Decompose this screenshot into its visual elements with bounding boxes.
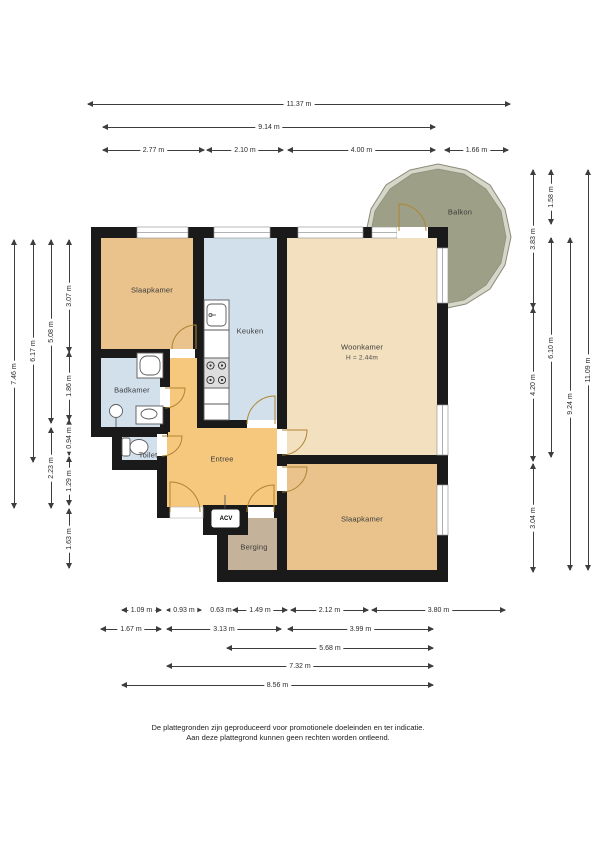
dimension-line: 11.09 m — [588, 170, 589, 570]
dimension-line: 3.80 m — [372, 610, 505, 611]
dimension-line: 5.08 m — [51, 240, 52, 423]
dimension-line: 1.49 m — [233, 610, 287, 611]
room-label-keuken: Keuken — [237, 327, 264, 336]
dimension-line: 1.66 m — [445, 150, 508, 151]
dimension-line: 0.63 m — [209, 610, 233, 611]
room-label-woonkamer: Woonkamer — [341, 343, 383, 352]
bathroom-sink-icon — [136, 406, 163, 424]
dimension-line: 2.77 m — [103, 150, 204, 151]
dimension-label: 11.09 m — [585, 355, 593, 386]
dimension-line: 1.67 m — [101, 629, 161, 630]
dimension-label: 6.17 m — [30, 337, 38, 364]
dimension-line: 2.23 m — [51, 428, 52, 508]
dimension-label: 1.29 m — [66, 467, 74, 494]
room-label-slaapkamer-right: Slaapkamer — [341, 515, 383, 524]
dimension-label: 1.58 m — [548, 183, 556, 210]
dimension-label: 9.14 m — [255, 124, 282, 132]
dimension-label: 1.49 m — [246, 607, 273, 615]
dimension-label: 7.46 m — [11, 360, 19, 387]
dimension-line: 2.12 m — [291, 610, 368, 611]
door-opening-toilet — [157, 434, 167, 456]
dimension-label: 1.67 m — [117, 626, 144, 634]
dimension-label: 2.12 m — [316, 607, 343, 615]
dimension-label: 1.86 m — [66, 372, 74, 399]
dimension-label: 4.20 m — [530, 371, 538, 398]
footer-line-2: Aan deze plattegrond kunnen geen rechten… — [0, 733, 576, 743]
dimension-line: 2.10 m — [207, 150, 283, 151]
dimension-line: 0.93 m — [167, 610, 201, 611]
dimension-label: 11.37 m — [284, 101, 315, 109]
door-opening-badkamer — [160, 387, 170, 407]
dimension-line: 3.07 m — [69, 240, 70, 352]
floorplan-page: Slaapkamer Keuken Woonkamer H = 2.44m Ba… — [0, 0, 600, 849]
dimension-label: 0.93 m — [170, 607, 197, 615]
footer-disclaimer: De plattegronden zijn geproduceerd voor … — [0, 723, 576, 742]
door-opening-woonkamer — [277, 429, 287, 454]
dimension-label: 3.07 m — [66, 282, 74, 309]
room-label-balkon: Balkon — [448, 208, 472, 217]
dimension-line: 3.04 m — [533, 464, 534, 572]
dimension-line: 1.09 m — [122, 610, 161, 611]
dimension-label: 2.10 m — [231, 147, 258, 155]
kitchen-sink-icon — [207, 304, 226, 326]
room-entree-main — [162, 420, 282, 512]
dimension-label: 1.09 m — [128, 607, 155, 615]
dimension-label: 4.00 m — [348, 147, 375, 155]
dimension-line: 1.29 m — [69, 457, 70, 505]
door-opening-slaapkamer-left — [170, 349, 195, 358]
dimension-label: 6.10 m — [548, 334, 556, 361]
footer-line-1: De plattegronden zijn geproduceerd voor … — [0, 723, 576, 733]
dimension-line: 3.83 m — [533, 170, 534, 308]
door-opening-slaapkamer-right — [277, 466, 287, 491]
room-label-entree: Entree — [210, 455, 233, 464]
room-label-slaapkamer-left: Slaapkamer — [131, 286, 173, 295]
dimension-line: 4.00 m — [288, 150, 435, 151]
room-entree-corridor — [165, 354, 199, 424]
room-label-acv: ACV — [220, 516, 233, 522]
dimension-label: 0.63 m — [207, 607, 234, 615]
dimension-label: 8.56 m — [264, 682, 291, 690]
room-label-berging: Berging — [240, 543, 267, 552]
dimension-label: 5.08 m — [48, 318, 56, 345]
dimension-label: 2.77 m — [140, 147, 167, 155]
dimension-line: 1.86 m — [69, 352, 70, 420]
dimension-line: 7.46 m — [14, 240, 15, 508]
room-label-toilet: Toilet — [139, 451, 158, 460]
dimension-label: 5.68 m — [316, 645, 343, 653]
dimension-label: 9.24 m — [567, 390, 575, 417]
door-opening-berging — [248, 507, 274, 518]
dimension-label: 3.04 m — [530, 504, 538, 531]
room-fills — [96, 232, 442, 575]
dimension-line: 6.17 m — [33, 240, 34, 462]
room-note-ceiling-height: H = 2.44m — [346, 355, 378, 362]
dimension-label: 2.23 m — [48, 454, 56, 481]
dimension-line: 5.68 m — [227, 648, 433, 649]
stove-icon — [204, 358, 229, 388]
dimension-label: 3.99 m — [347, 626, 374, 634]
dimension-line: 3.13 m — [167, 629, 281, 630]
dimension-line: 1.63 m — [69, 509, 70, 568]
dimension-line: 3.99 m — [288, 629, 433, 630]
room-label-badkamer: Badkamer — [114, 386, 150, 395]
bathtub-icon — [137, 353, 163, 378]
dimension-label: 7.32 m — [286, 663, 313, 671]
dimension-line: 7.32 m — [167, 666, 433, 667]
dimension-label: 3.13 m — [210, 626, 237, 634]
dimension-label: 0.94 m — [66, 424, 74, 451]
dimension-label: 3.83 m — [530, 225, 538, 252]
dimension-label: 1.63 m — [66, 525, 74, 552]
dimension-line: 0.94 m — [69, 420, 70, 455]
dimension-line: 6.10 m — [551, 238, 552, 457]
dimension-line: 11.37 m — [88, 104, 510, 105]
dimension-line: 4.20 m — [533, 308, 534, 461]
dimension-line: 9.14 m — [103, 127, 435, 128]
dimension-label: 1.66 m — [463, 147, 490, 155]
dimension-label: 3.80 m — [425, 607, 452, 615]
dimension-line: 8.56 m — [122, 685, 433, 686]
door-opening-keuken — [247, 420, 277, 428]
dimension-line: 9.24 m — [570, 238, 571, 570]
dimension-line: 1.58 m — [551, 170, 552, 224]
door-opening-front — [170, 507, 203, 518]
door-opening-balkon — [397, 227, 428, 238]
